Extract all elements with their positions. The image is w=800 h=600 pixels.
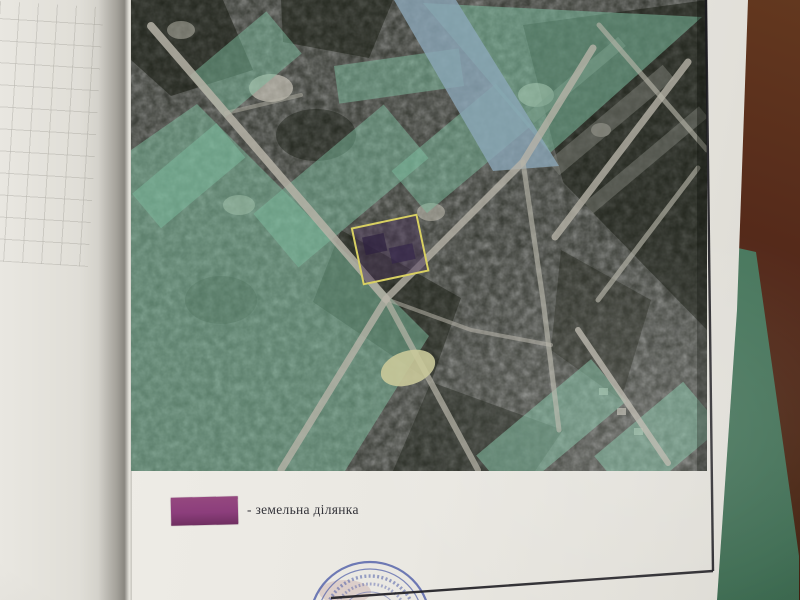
reference-grid-table (0, 1, 104, 267)
satellite-map (131, 0, 707, 471)
legend-swatch (171, 496, 239, 525)
official-stamp (295, 552, 445, 600)
satellite-image (131, 0, 707, 471)
land-plot-marker (352, 215, 428, 284)
map-edge-shade (697, 0, 707, 471)
photographed-document: - земельна ділянка (0, 0, 800, 600)
legend-label: - земельна ділянка (247, 502, 359, 518)
stamp-seal-icon (295, 552, 445, 600)
page-gutter-fold (98, 0, 132, 600)
